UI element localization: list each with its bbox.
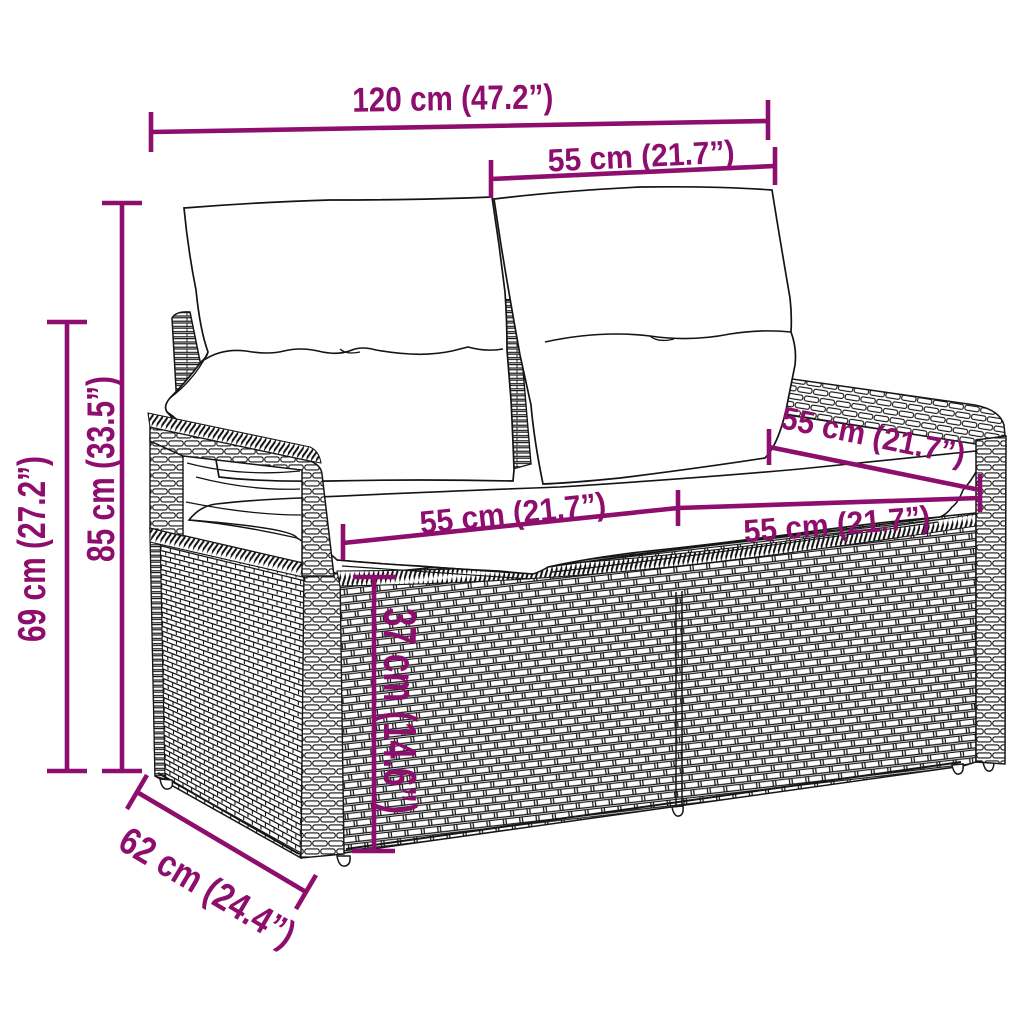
- svg-text:37 cm (14.6”): 37 cm (14.6”): [374, 608, 426, 814]
- svg-text:69 cm (27.2”): 69 cm (27.2”): [11, 456, 54, 642]
- svg-text:85 cm (33.5”): 85 cm (33.5”): [80, 376, 123, 562]
- svg-text:120 cm (47.2”): 120 cm (47.2”): [352, 78, 554, 120]
